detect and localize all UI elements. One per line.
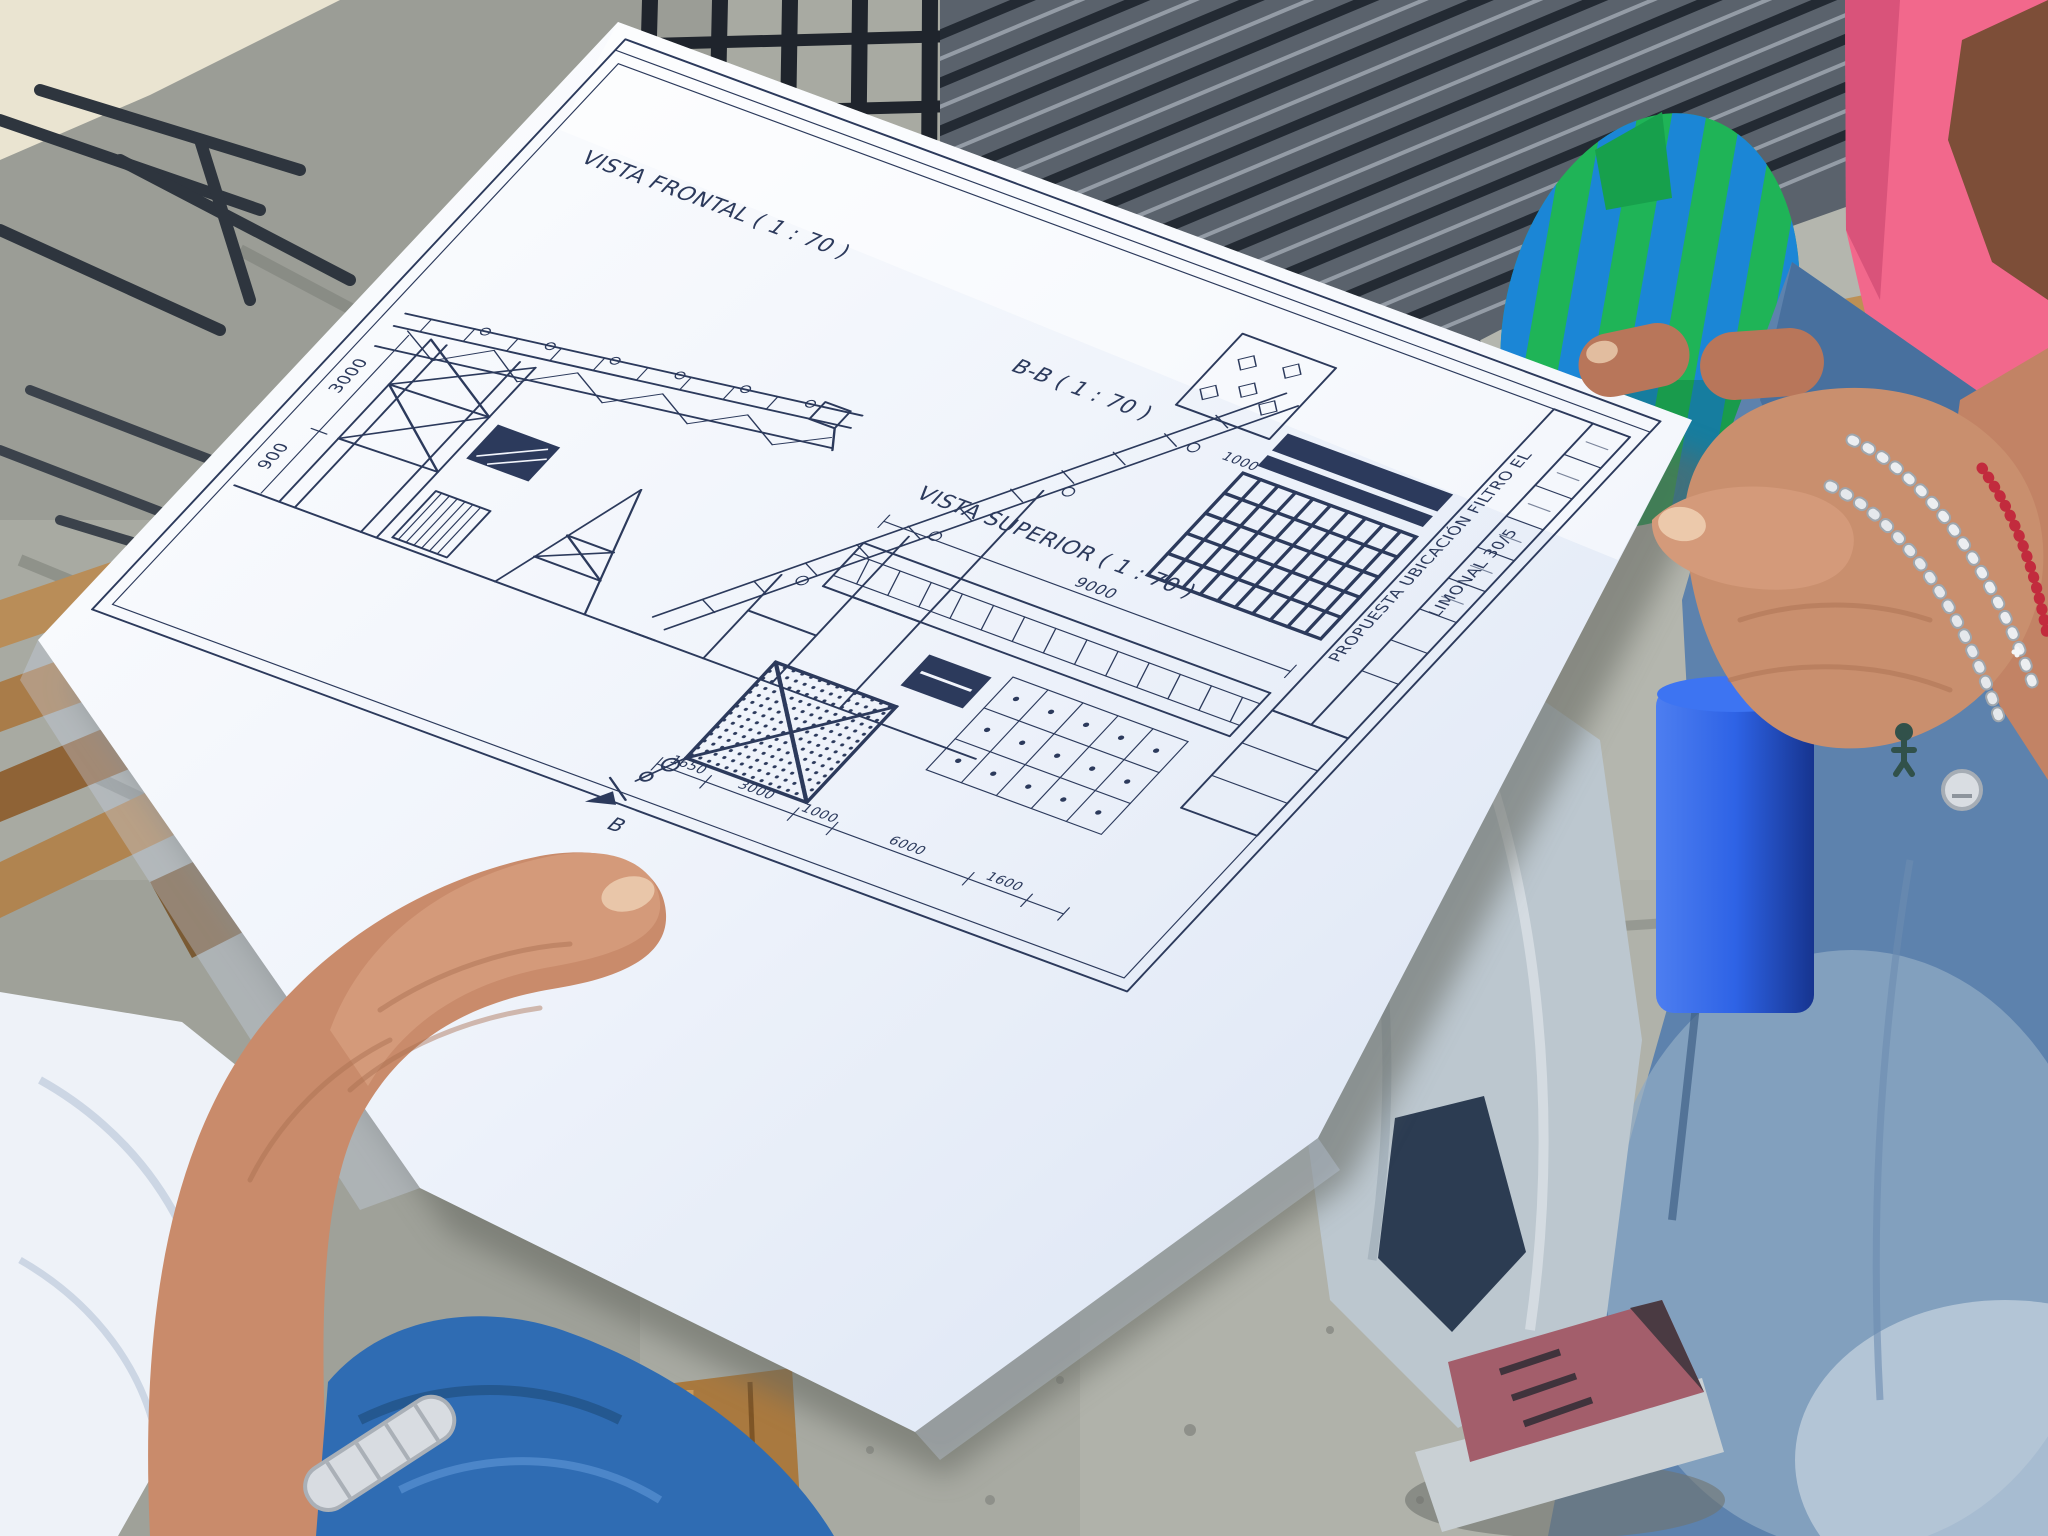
blue-barrel (1656, 688, 1814, 1013)
construction-site-photo: PROPUESTA UBICACIÓN FILTRO EL LIMONAL 30… (0, 0, 2048, 1536)
